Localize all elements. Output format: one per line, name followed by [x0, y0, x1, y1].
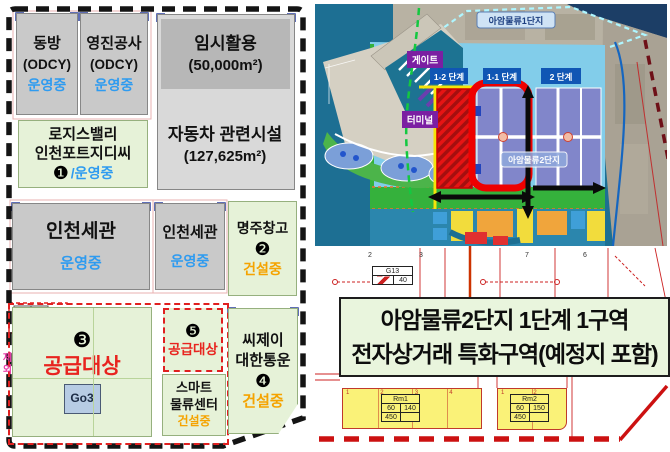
map-complex1-label: 아암물류1단지 [489, 15, 544, 26]
cj-status: 건설중 [242, 393, 283, 410]
customs1-name: 인천세관 [46, 221, 116, 243]
auto-facility-line2: (127,625m²) [184, 148, 267, 165]
title-line2: 전자상거래 특화구역(예정지 포함) [351, 337, 657, 372]
screenshot-root: 70 4 70 40 1.00 - 동방 (ODCY) 운영중 영진공사 (OD… [0, 0, 670, 452]
temp-use-line2: (50,000m²) [188, 57, 262, 74]
block-smart-center: 스마트 물류센터 건설중 [162, 374, 226, 436]
block-customs-1: 인천세관 운영중 [12, 203, 150, 290]
supply3-label: 공급대상 [43, 355, 120, 379]
block-supply-5: ❺ 공급대상 [163, 308, 223, 372]
map-gate-label: 게이트 [412, 55, 438, 67]
go3-tag: Go3 [64, 384, 101, 414]
badge-3: ❸ [73, 330, 92, 351]
myeongju-name: 명주창고 [237, 220, 289, 236]
block-dongbang: 동방 (ODCY) 운영중 [16, 13, 78, 115]
block-logisvalley-line2: 인천포트지디씨 [35, 145, 132, 162]
parcel-line-v [93, 308, 94, 436]
smart-line2: 물류센터 [170, 398, 218, 413]
smart-line1: 스마트 [176, 381, 212, 396]
g13-cell-40: 40 [394, 276, 413, 285]
block-youngjin-sub: (ODCY) [90, 57, 138, 73]
block-youngjin: 영진공사 (ODCY) 운영중 [80, 13, 148, 115]
map-complex2-label: 아암물류2단지 [508, 155, 560, 165]
rm1-cell: 450 [382, 413, 401, 422]
rm2-cell [530, 413, 549, 422]
cad-num: 2 [368, 252, 372, 259]
block-myeongju: 명주창고 ❷ 건설중 [228, 201, 297, 296]
site-map: 아암물류1단지 게이트 터미널 1-2 단계 1-1 단계 2 단계 아암물류2… [315, 4, 667, 246]
block-auto-facility: 자동차 관련시설 (127,625m²) [158, 115, 292, 175]
supply5-label: 공급대상 [168, 342, 218, 358]
block-youngjin-name: 영진공사 [86, 35, 141, 52]
cj-line2: 대한통운 [235, 352, 290, 369]
block-dongbang-status: 운영중 [28, 77, 67, 93]
blk1-num: 4 [449, 390, 452, 396]
cj-line1: 씨제이 [242, 332, 283, 349]
temp-use-line1: 임시활용 [194, 34, 257, 54]
block-supply-3: ❸ 공급대상 Go3 [12, 307, 152, 437]
rm1-title: Rm1 [382, 395, 420, 404]
rm1-cell: 140 [401, 404, 420, 413]
map-phase12-label: 1-2 단계 [434, 72, 464, 82]
rm2-table: Rm2 60 150 450 [510, 394, 549, 422]
rm2-cell: 150 [530, 404, 549, 413]
badge-4: ❹ [255, 372, 271, 390]
customs2-name: 인천세관 [162, 224, 217, 241]
block-youngjin-status: 운영중 [95, 77, 134, 93]
block-dongbang-name: 동방 [33, 35, 61, 52]
g13-table: G13 40 [372, 266, 413, 285]
smart-status: 건설중 [177, 415, 210, 429]
block-cj: 씨제이 대한통운 ❹ 건설중 [228, 308, 298, 434]
block-logisvalley: 로지스밸리 인천포트지디씨 ❶ /운영중 [18, 120, 148, 188]
rm1-table: Rm1 60 140 450 [381, 394, 420, 422]
cad-num: 7 [525, 252, 529, 259]
blk1-num: 1 [346, 390, 349, 396]
map-phase11-label: 1-1 단계 [487, 72, 517, 82]
g13-cell: G13 [373, 267, 413, 276]
block-customs-2: 인천세관 운영중 [155, 203, 225, 290]
rm1-cell [401, 413, 420, 422]
cad-num: 3 [419, 252, 423, 259]
myeongju-status: 건설중 [243, 261, 282, 277]
title-line1: 아암물류2단지 1단계 1구역 [381, 303, 629, 338]
customs2-status: 운영중 [171, 253, 210, 269]
block-temp-auto: 임시활용 (50,000m²) 자동차 관련시설 (127,625m²) [157, 14, 295, 190]
cad-yellow-block-2: 1 2 Rm2 60 150 450 [497, 388, 567, 430]
badge-5: ❺ [185, 322, 201, 340]
parcel-line-h [13, 378, 151, 379]
badge-1: ❶ [53, 164, 69, 182]
title-box: 아암물류2단지 1단계 1구역 전자상거래 특화구역(예정지 포함) [339, 297, 670, 377]
cad-num: 6 [583, 252, 587, 259]
block-temp-use: 임시활용 (50,000m²) [161, 19, 290, 89]
badge-2: ❷ [254, 240, 270, 258]
map-landuse-blocks [370, 209, 605, 246]
customs1-status: 운영중 [60, 255, 101, 272]
map-hatched-zone [437, 89, 472, 188]
block-logisvalley-line1: 로지스밸리 [48, 126, 117, 143]
rm2-title: Rm2 [511, 395, 549, 404]
block-dongbang-sub: (ODCY) [23, 57, 71, 73]
cad-yellow-block-1: 1 2 3 4 Rm1 60 140 450 [342, 388, 482, 429]
rm1-cell: 60 [382, 404, 401, 413]
blk2-num: 1 [501, 390, 504, 396]
auto-facility-line1: 자동차 관련시설 [168, 125, 282, 145]
rm2-cell: 450 [511, 413, 530, 422]
g13-scribble-cell [373, 276, 394, 285]
block-logisvalley-status: /운영중 [71, 165, 114, 181]
map-phase2-label: 2 단계 [550, 72, 573, 82]
excluded-vertical-label: 제외 [0, 352, 13, 376]
map-terminal-label: 터미널 [407, 115, 433, 127]
rm2-cell: 60 [511, 404, 530, 413]
